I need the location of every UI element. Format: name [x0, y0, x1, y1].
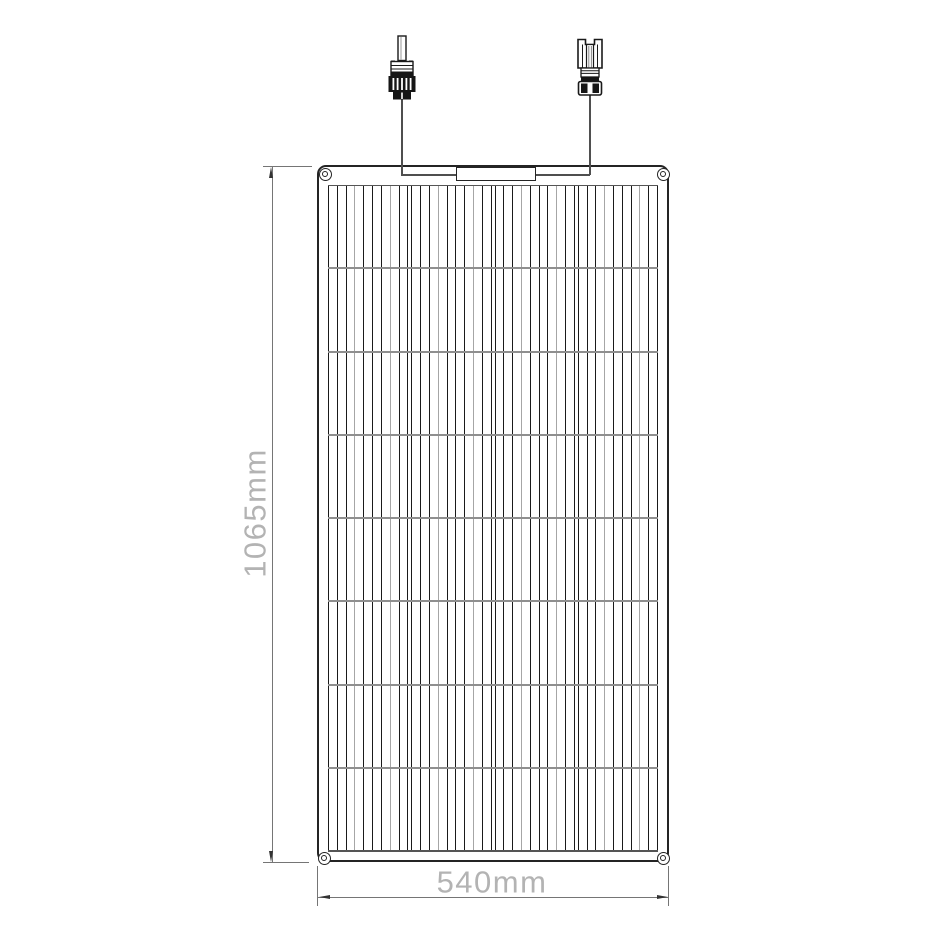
- cell-group: [328, 269, 408, 350]
- width-extension-line-right: [668, 866, 669, 906]
- solar-cell: [649, 436, 657, 517]
- solar-cell: [588, 519, 597, 600]
- solar-cell: [329, 769, 338, 850]
- solar-cell: [483, 519, 491, 600]
- solar-cell: [338, 519, 347, 600]
- solar-cell: [605, 436, 614, 517]
- solar-cell: [588, 769, 597, 850]
- cell-group: [411, 186, 491, 267]
- solar-cell: [649, 769, 657, 850]
- solar-cell: [579, 519, 588, 600]
- solar-cell: [566, 353, 574, 434]
- solar-cell: [640, 519, 649, 600]
- cell-group: [411, 353, 491, 434]
- solar-cell: [364, 186, 373, 267]
- solar-cell: [448, 769, 457, 850]
- solar-cell: [531, 769, 540, 850]
- solar-cell: [557, 602, 566, 683]
- solar-cell: [430, 186, 439, 267]
- solar-cell: [513, 186, 522, 267]
- solar-cell: [504, 519, 513, 600]
- solar-cell: [579, 602, 588, 683]
- solar-cell: [513, 519, 522, 600]
- solar-cell: [540, 269, 549, 350]
- solar-cell: [522, 269, 531, 350]
- cell-group: [495, 602, 575, 683]
- solar-cell: [548, 686, 557, 767]
- solar-cell: [605, 353, 614, 434]
- solar-cell: [347, 686, 356, 767]
- solar-cell: [391, 519, 400, 600]
- solar-cell: [632, 602, 641, 683]
- solar-cell: [456, 686, 465, 767]
- solar-cell: [364, 519, 373, 600]
- solar-cell: [540, 686, 549, 767]
- cell-group: [328, 602, 408, 683]
- solar-cell: [364, 602, 373, 683]
- solar-cell: [513, 769, 522, 850]
- solar-cell: [439, 269, 448, 350]
- cell-group: [578, 436, 658, 517]
- solar-cell: [588, 353, 597, 434]
- solar-cell: [640, 353, 649, 434]
- solar-cell: [649, 269, 657, 350]
- cell-group: [578, 186, 658, 267]
- solar-cell: [548, 519, 557, 600]
- solar-cell: [465, 769, 474, 850]
- solar-cell: [421, 269, 430, 350]
- solar-cell: [439, 602, 448, 683]
- solar-cell: [483, 436, 491, 517]
- solar-cell: [531, 686, 540, 767]
- cell-group: [578, 769, 658, 850]
- solar-cell: [483, 186, 491, 267]
- solar-cell: [649, 519, 657, 600]
- solar-cell: [364, 686, 373, 767]
- solar-cell: [355, 519, 364, 600]
- cell-group: [328, 686, 408, 767]
- mc4-female-connector-icon: [573, 36, 607, 97]
- width-extension-line-left: [317, 866, 318, 906]
- solar-cell: [347, 353, 356, 434]
- left-wire-vertical: [401, 99, 403, 175]
- solar-cell: [364, 769, 373, 850]
- solar-cell: [421, 686, 430, 767]
- solar-cell: [355, 686, 364, 767]
- solar-cell: [456, 269, 465, 350]
- solar-cell: [355, 436, 364, 517]
- solar-cell: [640, 436, 649, 517]
- solar-cell: [596, 436, 605, 517]
- solar-cell: [456, 436, 465, 517]
- solar-cell: [400, 602, 408, 683]
- solar-cell: [566, 436, 574, 517]
- solar-cell: [474, 353, 483, 434]
- solar-cell: [640, 686, 649, 767]
- solar-cell: [465, 186, 474, 267]
- solar-cell: [400, 353, 408, 434]
- solar-cell: [504, 769, 513, 850]
- solar-cell: [588, 269, 597, 350]
- solar-cell: [448, 686, 457, 767]
- cell-row: [328, 769, 658, 850]
- solar-cell: [439, 436, 448, 517]
- solar-cell: [596, 686, 605, 767]
- solar-cell: [522, 686, 531, 767]
- solar-cell: [632, 686, 641, 767]
- solar-cell: [448, 519, 457, 600]
- solar-cell: [588, 686, 597, 767]
- solar-cell: [483, 269, 491, 350]
- solar-cell: [421, 769, 430, 850]
- solar-cell: [421, 436, 430, 517]
- solar-cell: [355, 602, 364, 683]
- solar-cell: [566, 769, 574, 850]
- solar-cell: [504, 269, 513, 350]
- solar-cell: [496, 436, 505, 517]
- solar-cell: [338, 436, 347, 517]
- solar-cell: [504, 186, 513, 267]
- solar-cell: [373, 186, 382, 267]
- solar-cell: [548, 186, 557, 267]
- solar-cell: [382, 519, 391, 600]
- cell-row: [328, 519, 658, 602]
- solar-cell: [373, 602, 382, 683]
- cell-group: [578, 686, 658, 767]
- cell-group: [495, 686, 575, 767]
- height-extension-line-bottom: [263, 862, 309, 863]
- solar-cell: [504, 353, 513, 434]
- solar-cell: [430, 602, 439, 683]
- solar-cell: [400, 186, 408, 267]
- solar-cell: [548, 269, 557, 350]
- solar-cell: [412, 353, 421, 434]
- solar-cell: [338, 353, 347, 434]
- cell-group: [495, 769, 575, 850]
- cell-row: [328, 353, 658, 436]
- solar-cell: [421, 602, 430, 683]
- solar-cell: [474, 269, 483, 350]
- cell-group: [328, 519, 408, 600]
- solar-cell: [596, 353, 605, 434]
- solar-cell: [421, 186, 430, 267]
- solar-cell: [382, 602, 391, 683]
- solar-cell: [483, 769, 491, 850]
- solar-cell: [531, 602, 540, 683]
- solar-cell: [448, 436, 457, 517]
- solar-cell: [540, 436, 549, 517]
- solar-cell: [329, 353, 338, 434]
- solar-cell: [548, 602, 557, 683]
- solar-cell: [391, 436, 400, 517]
- solar-cell: [474, 686, 483, 767]
- solar-cell: [439, 769, 448, 850]
- solar-cell: [496, 269, 505, 350]
- solar-cell: [649, 602, 657, 683]
- solar-cell: [474, 602, 483, 683]
- cell-group: [411, 769, 491, 850]
- cell-row: [328, 602, 658, 685]
- solar-panel-dimension-drawing: 1065mm 540mm: [0, 0, 950, 950]
- solar-cell: [632, 269, 641, 350]
- cell-group: [495, 269, 575, 350]
- cell-group: [328, 186, 408, 267]
- solar-cell: [347, 186, 356, 267]
- solar-cell: [579, 436, 588, 517]
- solar-cell: [338, 186, 347, 267]
- solar-cell: [531, 186, 540, 267]
- solar-cell: [430, 436, 439, 517]
- solar-cell: [496, 686, 505, 767]
- junction-box: [456, 167, 536, 181]
- solar-cell: [483, 686, 491, 767]
- solar-cell: [540, 353, 549, 434]
- solar-cell: [474, 769, 483, 850]
- solar-cell: [338, 769, 347, 850]
- cell-group: [411, 602, 491, 683]
- solar-cell: [465, 436, 474, 517]
- solar-cell: [465, 269, 474, 350]
- solar-cell: [412, 602, 421, 683]
- solar-cell: [400, 436, 408, 517]
- solar-cell: [614, 436, 623, 517]
- eyelet-inner-ring: [321, 855, 328, 862]
- solar-cell: [347, 519, 356, 600]
- width-arrow-left: [319, 895, 330, 899]
- solar-cell: [439, 353, 448, 434]
- cell-group: [328, 769, 408, 850]
- solar-cell: [329, 269, 338, 350]
- solar-cell: [412, 436, 421, 517]
- solar-cell: [588, 186, 597, 267]
- solar-cell: [513, 436, 522, 517]
- solar-cell: [632, 186, 641, 267]
- solar-cell: [474, 436, 483, 517]
- solar-cell: [579, 353, 588, 434]
- solar-cell: [640, 769, 649, 850]
- solar-cell: [614, 269, 623, 350]
- solar-cell: [579, 686, 588, 767]
- eyelet-top-left: [319, 168, 332, 181]
- solar-cell: [400, 686, 408, 767]
- solar-cell: [588, 602, 597, 683]
- solar-cell: [531, 269, 540, 350]
- solar-cell: [596, 269, 605, 350]
- solar-cell: [391, 186, 400, 267]
- solar-cell: [596, 602, 605, 683]
- solar-cell: [382, 269, 391, 350]
- cell-row: [328, 269, 658, 352]
- solar-cell: [579, 269, 588, 350]
- solar-cell: [548, 436, 557, 517]
- right-wire-horizontal: [536, 174, 590, 176]
- eyelet-inner-ring: [660, 855, 667, 862]
- solar-cell: [623, 186, 632, 267]
- mc4-male-connector-icon: [386, 30, 420, 102]
- solar-cell: [649, 186, 657, 267]
- solar-cell: [522, 519, 531, 600]
- solar-cell: [355, 269, 364, 350]
- solar-cell: [329, 519, 338, 600]
- left-wire-horizontal: [401, 174, 458, 176]
- solar-cell: [640, 602, 649, 683]
- solar-cell: [649, 353, 657, 434]
- solar-cell: [531, 519, 540, 600]
- solar-cell: [355, 769, 364, 850]
- solar-cell: [391, 353, 400, 434]
- solar-cell: [496, 769, 505, 850]
- cell-row: [328, 686, 658, 769]
- solar-cell: [373, 353, 382, 434]
- solar-cell: [448, 186, 457, 267]
- solar-cell: [632, 519, 641, 600]
- solar-cell: [623, 602, 632, 683]
- solar-cell: [579, 769, 588, 850]
- solar-cell: [421, 519, 430, 600]
- solar-cell: [465, 602, 474, 683]
- solar-cell: [623, 686, 632, 767]
- solar-cell: [614, 186, 623, 267]
- solar-cell: [382, 353, 391, 434]
- solar-cell: [329, 686, 338, 767]
- solar-cell: [465, 686, 474, 767]
- eyelet-inner-ring: [322, 171, 329, 178]
- solar-cell: [579, 186, 588, 267]
- solar-cell: [614, 353, 623, 434]
- solar-cell: [439, 686, 448, 767]
- solar-cell: [338, 602, 347, 683]
- width-dimension-label: 540mm: [437, 867, 548, 898]
- solar-cell: [364, 436, 373, 517]
- height-arrow-top: [269, 167, 273, 178]
- solar-cell: [566, 269, 574, 350]
- solar-cell: [382, 186, 391, 267]
- cell-group: [495, 519, 575, 600]
- solar-cell: [430, 686, 439, 767]
- solar-cell: [522, 602, 531, 683]
- solar-cell: [566, 519, 574, 600]
- solar-cell: [557, 353, 566, 434]
- cell-grid: [328, 185, 658, 852]
- solar-cell: [364, 353, 373, 434]
- solar-cell: [623, 769, 632, 850]
- solar-cell: [605, 602, 614, 683]
- solar-cell: [329, 602, 338, 683]
- width-arrow-right: [657, 895, 668, 899]
- solar-cell: [540, 602, 549, 683]
- solar-cell: [557, 186, 566, 267]
- solar-cell: [504, 436, 513, 517]
- solar-cell: [623, 353, 632, 434]
- solar-cell: [522, 186, 531, 267]
- solar-cell: [448, 602, 457, 683]
- solar-cell: [640, 269, 649, 350]
- cell-group: [328, 436, 408, 517]
- solar-cell: [605, 186, 614, 267]
- solar-cell: [566, 602, 574, 683]
- solar-cell: [391, 602, 400, 683]
- solar-cell: [640, 186, 649, 267]
- solar-cell: [421, 353, 430, 434]
- eyelet-top-right: [657, 168, 670, 181]
- solar-cell: [430, 353, 439, 434]
- solar-cell: [605, 769, 614, 850]
- cell-group: [411, 686, 491, 767]
- solar-cell: [522, 436, 531, 517]
- solar-cell: [338, 686, 347, 767]
- height-dimension-label: 1065mm: [240, 448, 271, 578]
- solar-cell: [465, 519, 474, 600]
- solar-cell: [373, 269, 382, 350]
- solar-cell: [588, 436, 597, 517]
- solar-cell: [557, 519, 566, 600]
- solar-cell: [347, 269, 356, 350]
- solar-cell: [347, 769, 356, 850]
- solar-cell: [391, 769, 400, 850]
- solar-cell: [382, 769, 391, 850]
- solar-cell: [605, 519, 614, 600]
- cell-group: [578, 602, 658, 683]
- solar-cell: [329, 186, 338, 267]
- solar-cell: [566, 186, 574, 267]
- solar-cell: [355, 353, 364, 434]
- cell-group: [495, 436, 575, 517]
- solar-cell: [531, 436, 540, 517]
- solar-cell: [448, 269, 457, 350]
- solar-cell: [513, 353, 522, 434]
- cell-group: [328, 353, 408, 434]
- solar-cell: [483, 602, 491, 683]
- solar-cell: [483, 353, 491, 434]
- solar-cell: [496, 602, 505, 683]
- solar-cell: [439, 519, 448, 600]
- solar-cell: [474, 186, 483, 267]
- solar-cell: [456, 602, 465, 683]
- cell-group: [578, 519, 658, 600]
- cell-group: [411, 436, 491, 517]
- solar-cell: [548, 769, 557, 850]
- solar-cell: [412, 519, 421, 600]
- cell-row: [328, 436, 658, 519]
- solar-cell: [632, 353, 641, 434]
- solar-cell: [382, 436, 391, 517]
- solar-cell: [632, 769, 641, 850]
- solar-cell: [391, 269, 400, 350]
- solar-cell: [513, 602, 522, 683]
- solar-cell: [430, 269, 439, 350]
- eyelet-inner-ring: [660, 171, 667, 178]
- solar-cell: [474, 519, 483, 600]
- solar-cell: [623, 269, 632, 350]
- solar-cell: [382, 686, 391, 767]
- solar-cell: [540, 769, 549, 850]
- eyelet-bottom-left: [318, 852, 331, 865]
- solar-cell: [623, 519, 632, 600]
- cell-row: [328, 186, 658, 269]
- solar-cell: [522, 353, 531, 434]
- cell-group: [411, 519, 491, 600]
- solar-cell: [632, 436, 641, 517]
- height-arrow-bottom: [269, 851, 273, 862]
- solar-cell: [566, 686, 574, 767]
- solar-cell: [338, 269, 347, 350]
- solar-cell: [400, 519, 408, 600]
- solar-cell: [373, 686, 382, 767]
- solar-cell: [496, 186, 505, 267]
- solar-cell: [614, 686, 623, 767]
- solar-cell: [439, 186, 448, 267]
- solar-cell: [614, 769, 623, 850]
